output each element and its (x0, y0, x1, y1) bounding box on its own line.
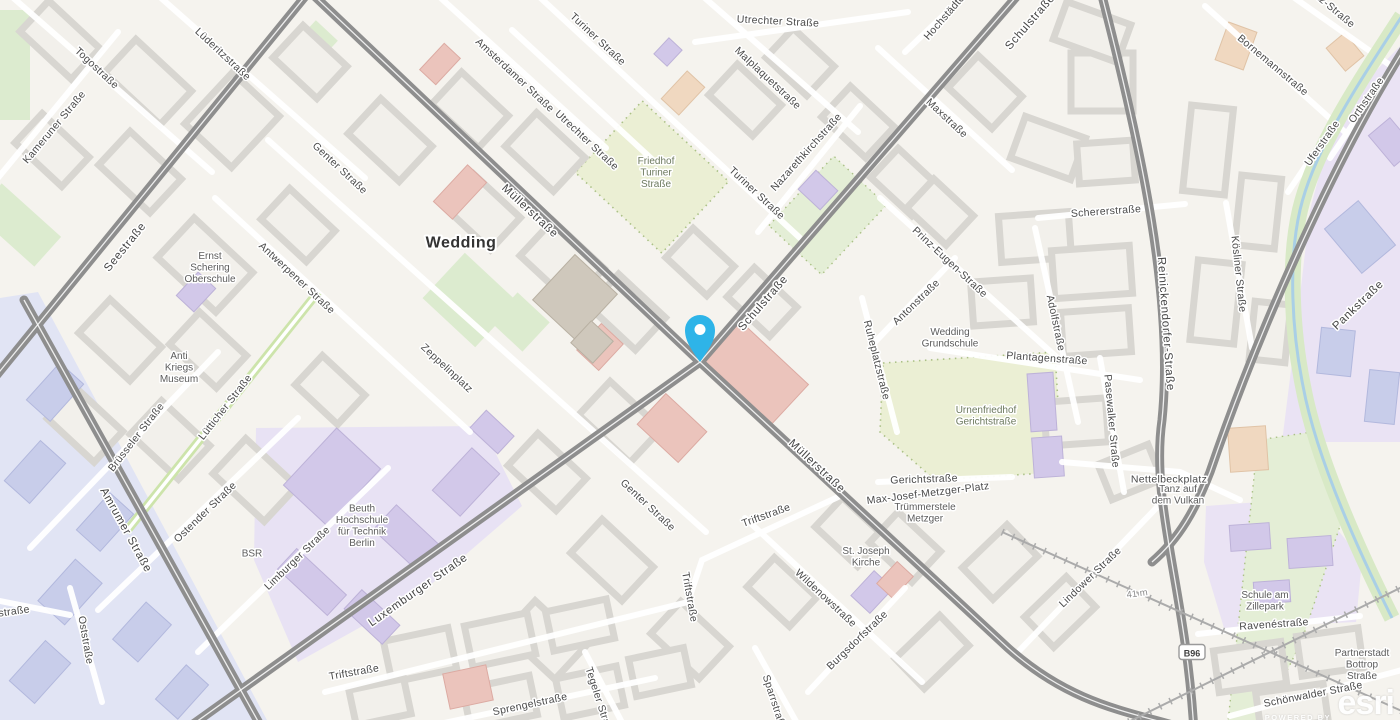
svg-text:BSR: BSR (242, 549, 263, 560)
attribution: POWERED BY esri (1267, 686, 1394, 720)
powered-by-text: POWERED BY (1265, 713, 1331, 720)
map-label: Schule amZillepark (1241, 590, 1288, 613)
map-label: BSR (242, 549, 263, 560)
svg-text:UrnenfriedhofGerichtstraße: UrnenfriedhofGerichtstraße (956, 405, 1017, 428)
map-label: FriedhofTurinerStraße (638, 156, 675, 190)
map-label: Tanz aufdem Vulkan (1152, 484, 1204, 507)
svg-text:Schule amZillepark: Schule amZillepark (1241, 590, 1288, 613)
map-canvas[interactable]: TogostraßeKameruner StraßeLüderitzstraße… (0, 0, 1400, 720)
pin-hole (695, 324, 706, 335)
map-svg: TogostraßeKameruner StraßeLüderitzstraße… (0, 0, 1400, 720)
map-label: Wedding (426, 235, 497, 252)
map-label: UrnenfriedhofGerichtstraße (956, 405, 1017, 428)
svg-text:Tanz aufdem Vulkan: Tanz aufdem Vulkan (1152, 484, 1204, 507)
svg-text:FriedhofTurinerStraße: FriedhofTurinerStraße (638, 156, 675, 190)
svg-text:B96: B96 (1184, 649, 1201, 659)
svg-text:Wedding: Wedding (426, 235, 497, 252)
esri-logo[interactable]: esri (1338, 684, 1395, 720)
map-label: B96 (1179, 645, 1205, 660)
